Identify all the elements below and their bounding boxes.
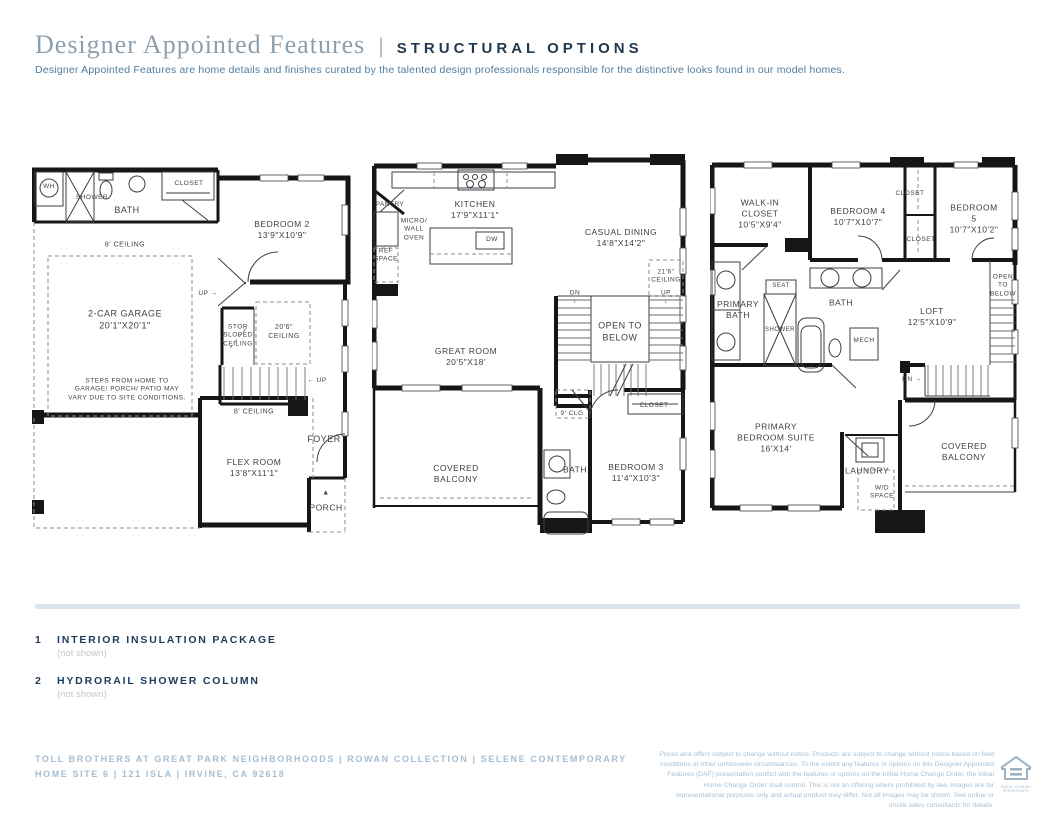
feature-number: 2 [35, 675, 42, 687]
feature-title: HYDRORAIL SHOWER COLUMN [57, 675, 260, 687]
room-label: LOFT 12'5"X10'9" [908, 306, 957, 328]
room-label: COVERED BALCONY [433, 463, 479, 485]
direction-label: DN ↓ [570, 290, 580, 307]
room-label: COVERED BALCONY [941, 441, 987, 463]
room-label: SHOWER [76, 194, 108, 202]
page: Designer Appointed Features | STRUCTURAL… [0, 0, 1055, 815]
room-label: REF SPACE [374, 248, 398, 265]
room-label: GREAT ROOM 20'5"X18' [435, 346, 497, 368]
title-separator: | [378, 35, 383, 59]
kitchen [372, 170, 555, 296]
room-label: BEDROOM 5 10'7"X10'2" [949, 202, 1000, 235]
room-label: CLOSET [895, 190, 924, 198]
room-label: PORCH [309, 502, 342, 513]
room-label: LAUNDRY [845, 465, 889, 476]
feature-note: (not shown) [57, 648, 107, 659]
footer-disclaimer: Prices and offers subject to change with… [658, 750, 994, 811]
section-divider [35, 604, 1020, 609]
room-label: PANTRY [376, 201, 405, 209]
room-label: BEDROOM 4 10'7"X10'7" [830, 206, 886, 228]
page-description: Designer Appointed Features are home det… [35, 64, 845, 76]
header: Designer Appointed Features | STRUCTURAL… [35, 30, 643, 60]
room-label: BEDROOM 3 11'4"X10'3" [608, 462, 664, 484]
floor-plan-2: PANTRY KITCHEN 17'9"X11'1" MICRO/ WALL O… [372, 150, 694, 540]
direction-label: DN → [902, 376, 922, 384]
room-label: FOYER [307, 434, 341, 446]
room-label: BATH [114, 205, 139, 217]
room-label: CLOSET [906, 236, 935, 244]
room-label: 21'6" CEILING [651, 269, 681, 286]
direction-label: UP → [198, 290, 217, 298]
room-label: WALK-IN CLOSET 10'5"X9'4" [738, 197, 782, 230]
room-label: OPEN TO BELOW [990, 273, 1016, 298]
room-label: 9' CLG [560, 410, 583, 418]
direction-label: UP ↓ [661, 290, 671, 307]
floor-plan-3: WALK-IN CLOSET 10'5"X9'4" BEDROOM 4 10'7… [710, 150, 1025, 545]
room-label: STOR SLOPED CEILING [223, 323, 253, 348]
room-label: OPEN TO BELOW [598, 320, 642, 343]
feature-note: (not shown) [57, 689, 107, 700]
room-label: PRIMARY BATH [717, 299, 759, 321]
room-label: DW [486, 236, 498, 244]
footer-line-2: HOME SITE 6 | 121 ISLA | IRVINE, CA 9261… [35, 767, 627, 782]
room-label: MECH [853, 337, 874, 345]
stairs [222, 308, 305, 400]
equal-housing-logo: EQUAL HOUSING OPPORTUNITY [999, 755, 1033, 794]
room-label: MICRO/ WALL OVEN [401, 217, 427, 242]
stairs [558, 296, 683, 396]
note-label: STEPS FROM HOME TO GARAGE/ PORCH/ PATIO … [68, 377, 186, 402]
room-label: 2-CAR GARAGE 20'1"X20'1" [88, 308, 162, 331]
room-label: CASUAL DINING 14'8"X14'2" [585, 227, 657, 249]
room-label: CLOSET [174, 180, 203, 188]
room-label: KITCHEN 17'9"X11'1" [451, 199, 499, 221]
page-title: Designer Appointed Features [35, 30, 365, 60]
feature-title: INTERIOR INSULATION PACKAGE [57, 634, 277, 646]
room-label: BATH [829, 297, 853, 308]
direction-label: ← UP [307, 377, 326, 385]
room-label: BATH [563, 464, 587, 475]
footer-line-1: TOLL BROTHERS AT GREAT PARK NEIGHBORHOOD… [35, 752, 627, 767]
room-label: 20'6" CEILING [268, 323, 300, 341]
room-label: 8' CEILING [105, 240, 145, 249]
room-label: SHOWER [765, 327, 795, 335]
feature-number: 1 [35, 634, 42, 646]
room-label: BEDROOM 2 13'9"X10'9" [254, 219, 310, 241]
room-label: 8' CEILING [234, 407, 274, 416]
footer-project-info: TOLL BROTHERS AT GREAT PARK NEIGHBORHOOD… [35, 752, 627, 782]
room-label: W/D SPACE [870, 485, 894, 502]
floor-plan-1-drawing [32, 160, 352, 535]
room-label: CLOSET [639, 402, 668, 410]
entry-arrow: ▲ [322, 488, 329, 497]
floor-plan-1: WH SHOWER BATH CLOSET BEDROOM 2 13'9"X10… [32, 160, 352, 535]
equal-housing-label: EQUAL HOUSING OPPORTUNITY [999, 786, 1033, 794]
room-label: WH [43, 183, 55, 191]
room-label: SEAT [772, 283, 789, 291]
room-label: FLEX ROOM 13'8"X11'1" [227, 457, 282, 479]
room-label: PRIMARY BEDROOM SUITE 16'X14' [737, 421, 815, 454]
page-subtitle: STRUCTURAL OPTIONS [397, 40, 643, 57]
equal-housing-house-icon [999, 755, 1033, 781]
